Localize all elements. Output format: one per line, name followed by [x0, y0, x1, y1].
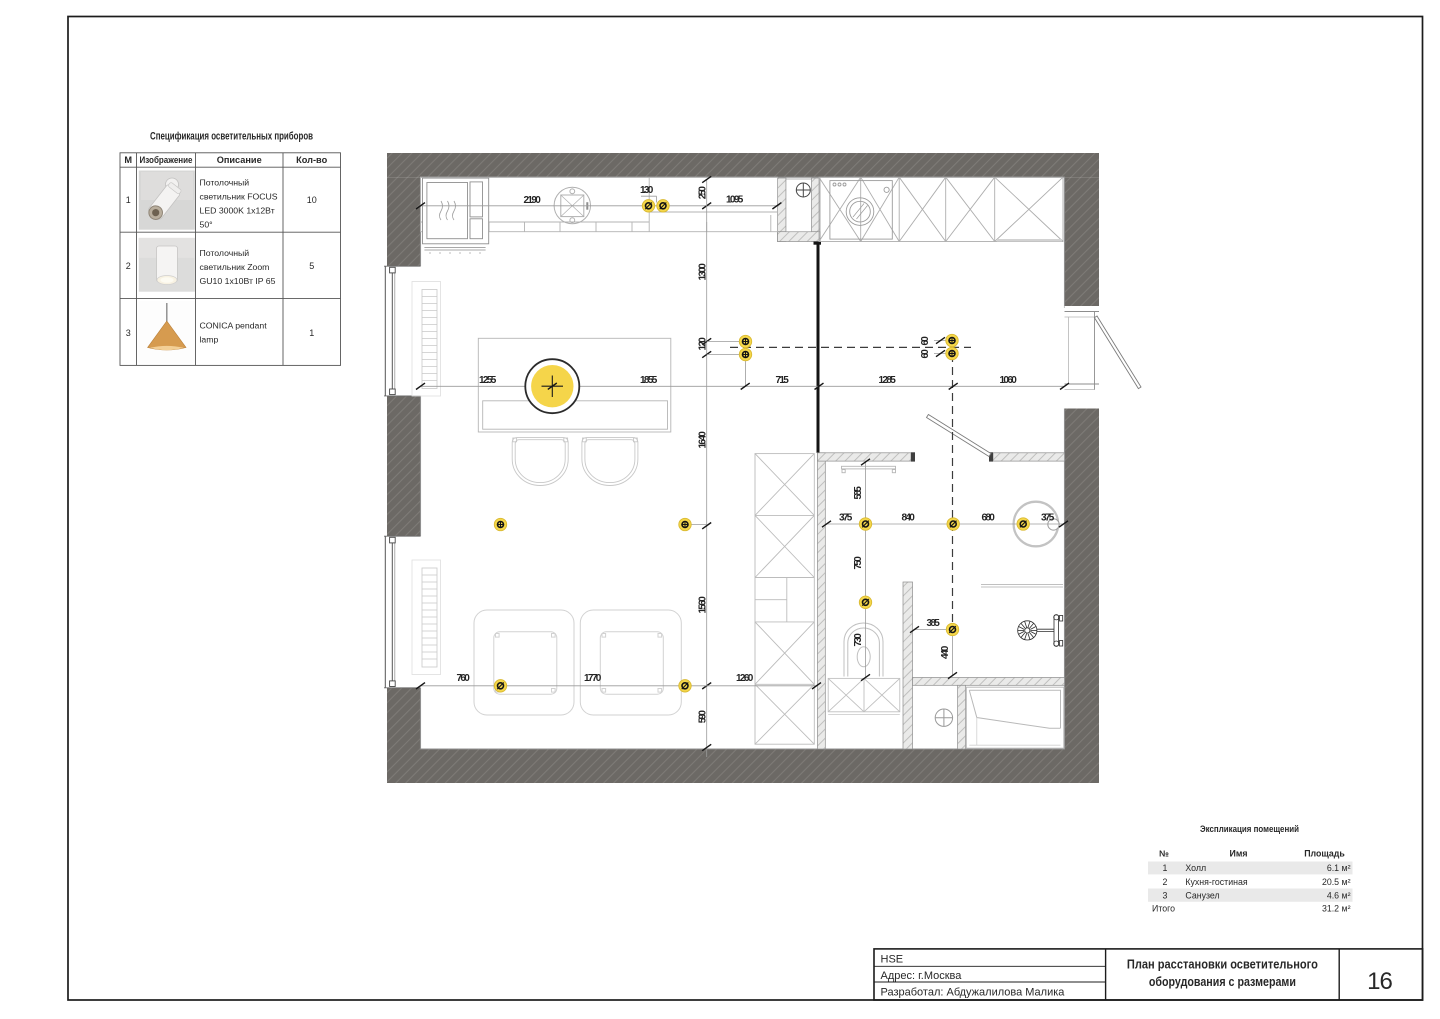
svg-text:Спецификация осветительных при: Спецификация осветительных приборов [150, 131, 313, 143]
svg-text:840: 840 [902, 513, 916, 524]
svg-text:Санузел: Санузел [1185, 890, 1219, 900]
svg-text:5: 5 [309, 261, 314, 271]
svg-text:lamp: lamp [200, 335, 219, 345]
svg-text:585: 585 [853, 486, 864, 500]
svg-text:LED 3000K 1x12Вт: LED 3000K 1x12Вт [200, 206, 275, 216]
svg-text:План расстановки осветительног: План расстановки осветительного [1127, 958, 1318, 972]
svg-text:светильник FOCUS: светильник FOCUS [200, 192, 278, 202]
svg-text:375: 375 [839, 513, 853, 524]
svg-text:385: 385 [927, 618, 941, 629]
svg-text:Изображение: Изображение [140, 155, 193, 165]
svg-text:50°: 50° [200, 220, 213, 230]
svg-text:Потолочный: Потолочный [200, 178, 250, 188]
svg-text:1640: 1640 [698, 431, 709, 449]
svg-text:250: 250 [698, 186, 709, 200]
svg-text:GU10 1x10Вт IP 65: GU10 1x10Вт IP 65 [200, 276, 276, 286]
svg-text:светильник Zoom: светильник Zoom [200, 262, 270, 272]
svg-text:Кол-во: Кол-во [296, 155, 327, 165]
svg-text:№: № [1159, 849, 1169, 859]
svg-text:6.1 м²: 6.1 м² [1327, 863, 1351, 873]
svg-text:Описание: Описание [217, 155, 262, 165]
svg-text:Потолочный: Потолочный [200, 248, 250, 258]
svg-text:3: 3 [126, 328, 131, 338]
svg-text:10: 10 [307, 195, 317, 205]
svg-text:Площадь: Площадь [1304, 849, 1345, 859]
svg-text:М: М [124, 155, 132, 165]
svg-text:590: 590 [698, 710, 709, 724]
svg-text:Разработал: Абдужалилова Малик: Разработал: Абдужалилова Малика [881, 987, 1066, 999]
svg-text:1: 1 [1162, 863, 1167, 873]
svg-text:375: 375 [1041, 513, 1055, 524]
svg-text:680: 680 [982, 513, 996, 524]
svg-text:Кухня-гостиная: Кухня-гостиная [1185, 877, 1247, 887]
svg-text:Экспликация помещений: Экспликация помещений [1200, 824, 1299, 834]
svg-text:1: 1 [126, 195, 131, 205]
svg-text:4.6 м²: 4.6 м² [1327, 890, 1351, 900]
svg-text:1855: 1855 [640, 375, 658, 386]
svg-text:1260: 1260 [736, 673, 754, 684]
svg-text:20.5 м²: 20.5 м² [1322, 877, 1351, 887]
svg-text:60: 60 [920, 336, 931, 346]
svg-text:оборудования с размерами: оборудования с размерами [1149, 975, 1296, 989]
svg-text:Итого: Итого [1152, 904, 1175, 914]
svg-text:120: 120 [698, 337, 709, 351]
svg-text:3: 3 [1162, 890, 1167, 900]
svg-text:60: 60 [920, 349, 931, 359]
svg-text:750: 750 [853, 556, 864, 570]
svg-text:1060: 1060 [1000, 375, 1018, 386]
svg-text:1560: 1560 [698, 596, 709, 614]
svg-text:1285: 1285 [879, 375, 897, 386]
svg-text:715: 715 [776, 375, 790, 386]
svg-text:1770: 1770 [584, 673, 602, 684]
svg-text:440: 440 [940, 645, 951, 659]
svg-text:16: 16 [1367, 968, 1392, 995]
svg-text:760: 760 [457, 673, 471, 684]
svg-text:CONICA pendant: CONICA pendant [200, 321, 268, 331]
svg-text:730: 730 [853, 633, 864, 647]
svg-text:Холл: Холл [1185, 863, 1206, 873]
svg-text:1095: 1095 [726, 195, 744, 206]
svg-text:31.2 м²: 31.2 м² [1322, 904, 1351, 914]
svg-text:1255: 1255 [479, 375, 497, 386]
svg-text:HSE: HSE [881, 954, 904, 966]
svg-text:Адрес: г.Москва: Адрес: г.Москва [881, 970, 963, 982]
svg-text:2190: 2190 [524, 195, 542, 206]
svg-text:2: 2 [1162, 877, 1167, 887]
svg-text:1: 1 [309, 328, 314, 338]
svg-text:1300: 1300 [698, 263, 709, 281]
svg-text:130: 130 [640, 185, 654, 196]
svg-text:2: 2 [126, 261, 131, 271]
svg-text:Имя: Имя [1230, 849, 1248, 859]
